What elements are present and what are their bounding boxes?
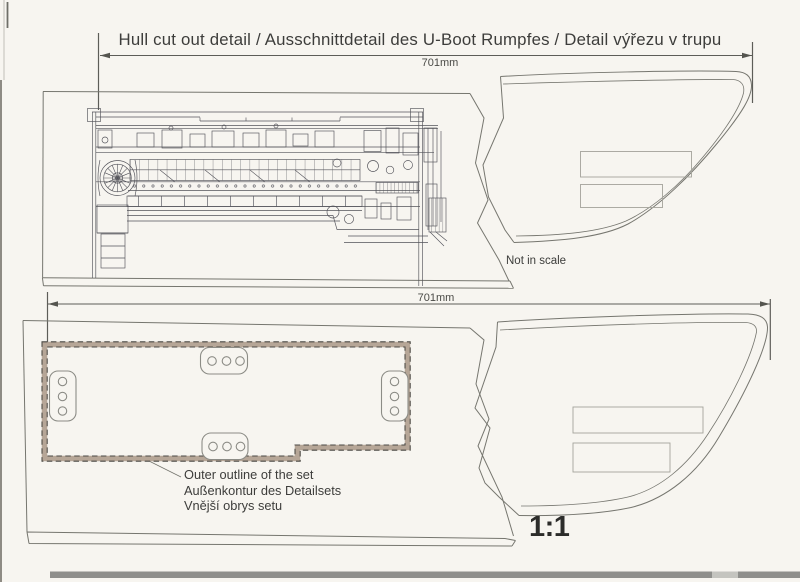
left-foundation xyxy=(97,130,128,268)
flywheel-spokes xyxy=(104,165,131,192)
outer-outline-labels: Outer outline of the set Außenkontur des… xyxy=(184,467,341,514)
locating-tabs xyxy=(50,348,409,460)
lower-hull-outline xyxy=(23,314,768,546)
outline-label-de: Außenkontur des Detailsets xyxy=(184,483,341,499)
sheet-title: Hull cut out detail / Ausschnittdetail d… xyxy=(119,30,722,50)
not-in-scale-note: Not in scale xyxy=(506,255,566,267)
outline-label-en: Outer outline of the set xyxy=(184,467,341,483)
engine-room-drawing xyxy=(88,109,448,287)
scanned-instruction-sheet: Hull cut out detail / Ausschnittdetail d… xyxy=(0,0,800,582)
scale-label: 1:1 xyxy=(529,511,569,544)
lower-dimension-label: 701mm xyxy=(418,292,455,304)
outline-label-cz: Vnější obrys setu xyxy=(184,498,341,514)
valve-gear xyxy=(137,124,334,148)
scan-artifacts xyxy=(0,0,800,582)
hull-diagram-art xyxy=(0,0,800,582)
upper-dimension-label: 701mm xyxy=(422,57,459,69)
